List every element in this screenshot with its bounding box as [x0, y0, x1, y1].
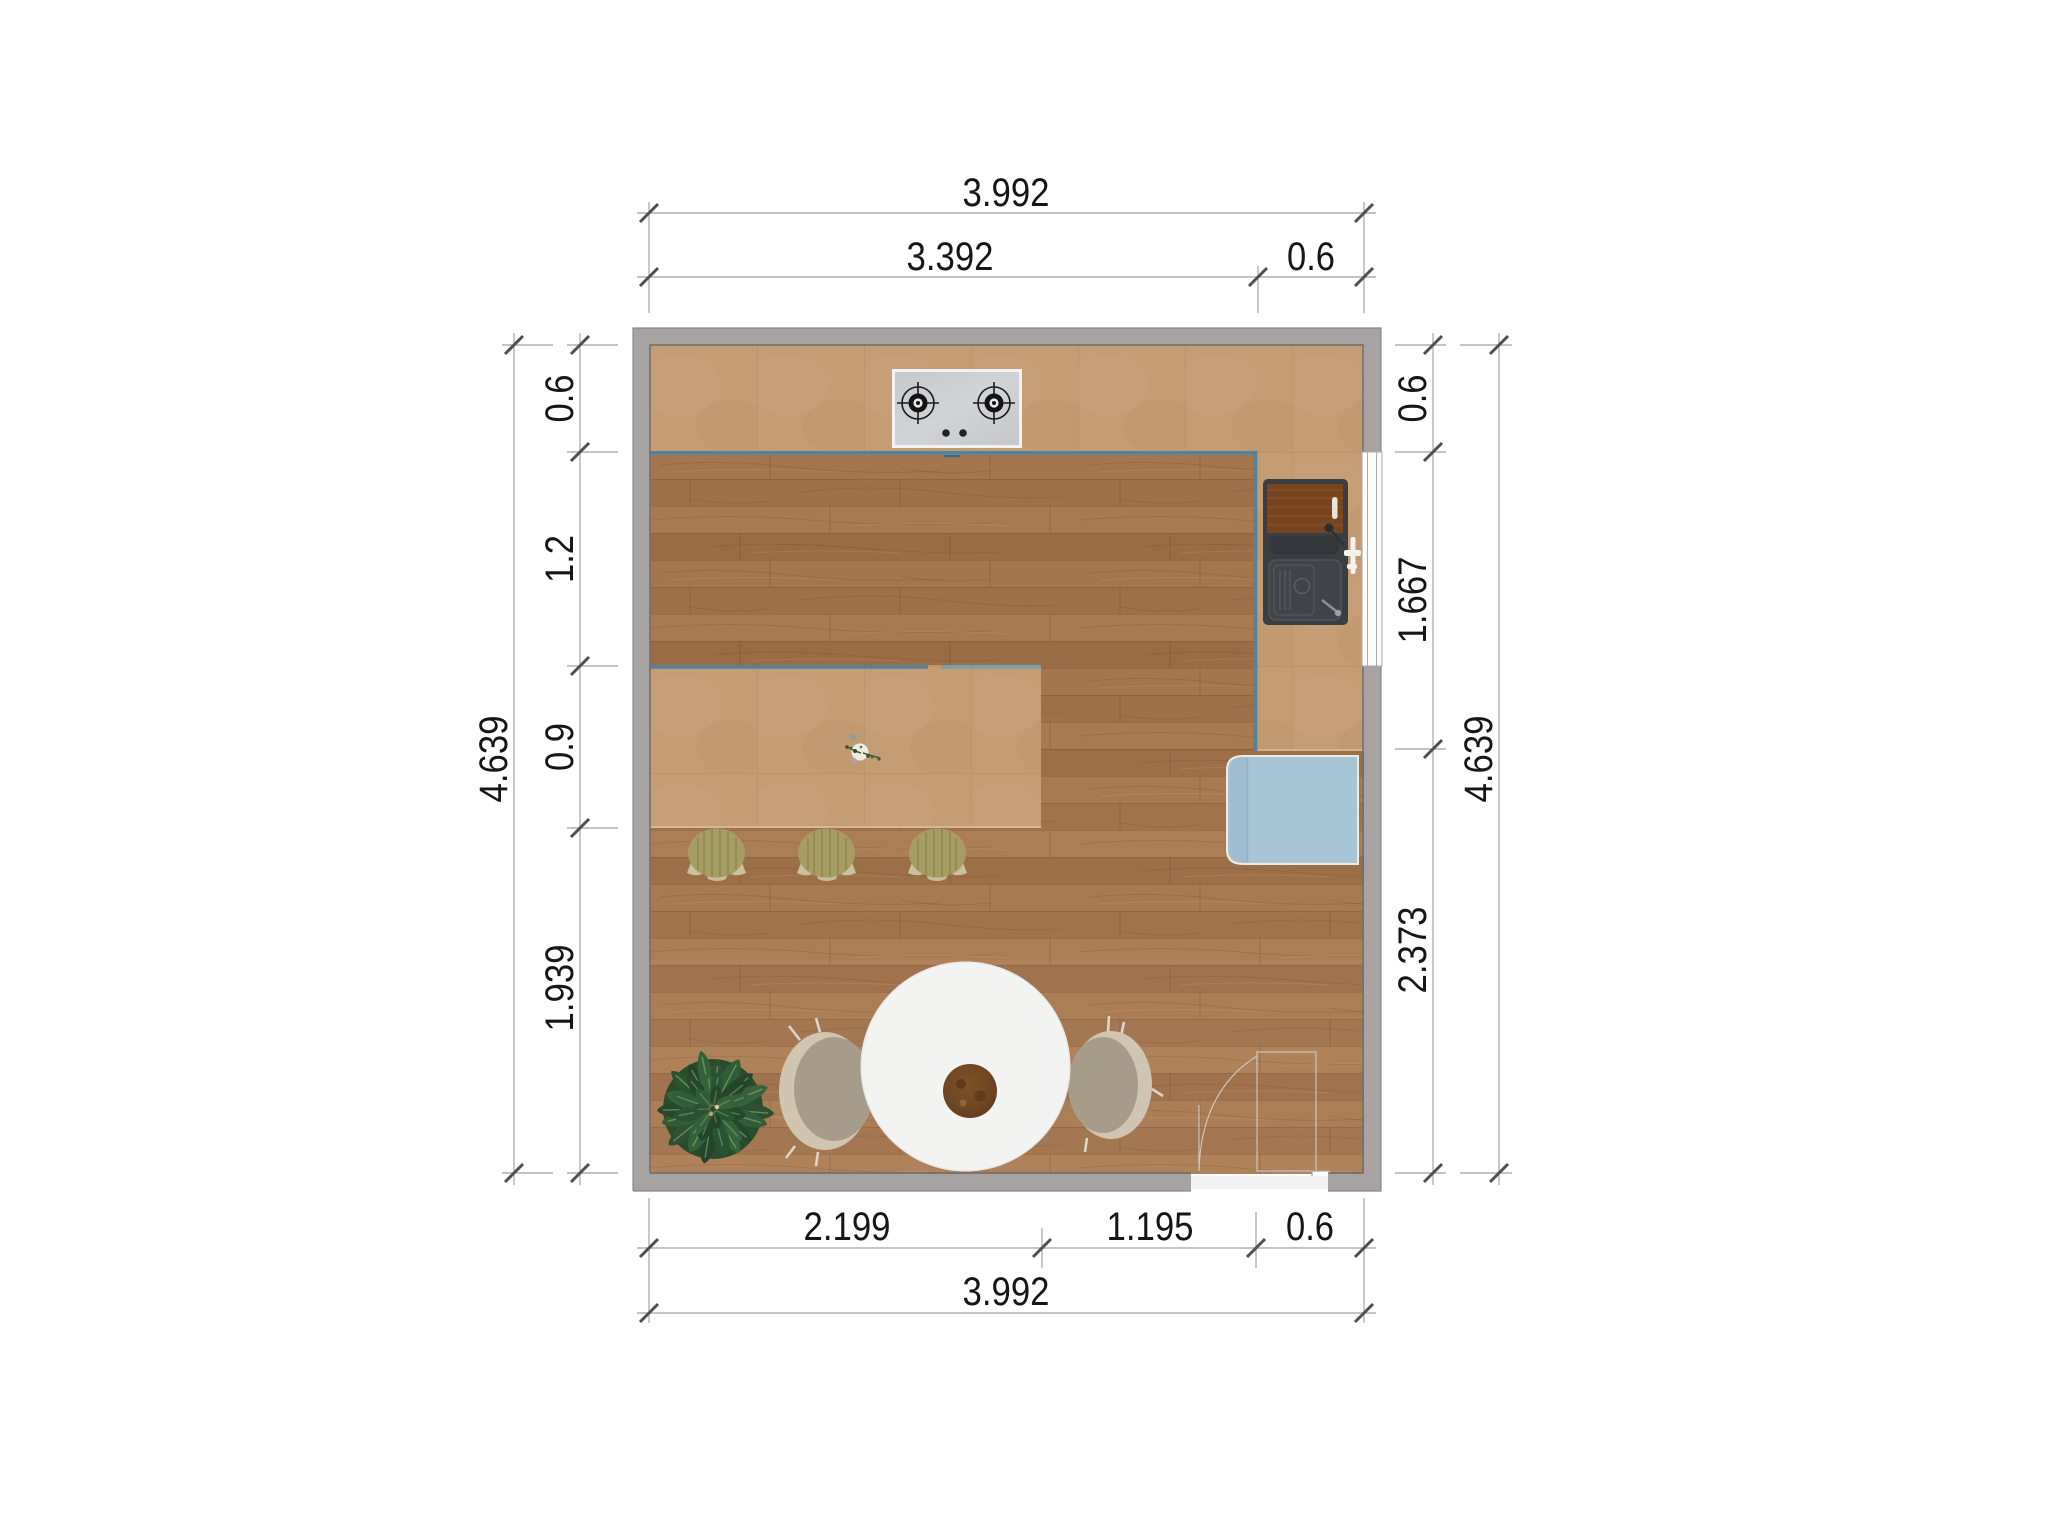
svg-text:1.939: 1.939	[538, 945, 582, 1032]
svg-text:1.667: 1.667	[1391, 557, 1435, 644]
svg-text:4.639: 4.639	[472, 716, 516, 803]
svg-text:4.639: 4.639	[1457, 716, 1501, 803]
svg-text:3.392: 3.392	[907, 235, 994, 279]
svg-text:0.9: 0.9	[538, 723, 582, 771]
svg-text:3.992: 3.992	[963, 1270, 1050, 1314]
svg-text:2.373: 2.373	[1391, 907, 1435, 994]
svg-text:3.992: 3.992	[963, 171, 1050, 215]
svg-text:0.6: 0.6	[1391, 375, 1435, 423]
svg-text:2.199: 2.199	[804, 1205, 891, 1249]
svg-text:0.6: 0.6	[1286, 1205, 1334, 1249]
svg-text:0.6: 0.6	[1287, 235, 1335, 279]
svg-text:1.195: 1.195	[1107, 1205, 1194, 1249]
svg-text:0.6: 0.6	[538, 375, 582, 423]
svg-text:1.2: 1.2	[538, 535, 582, 583]
